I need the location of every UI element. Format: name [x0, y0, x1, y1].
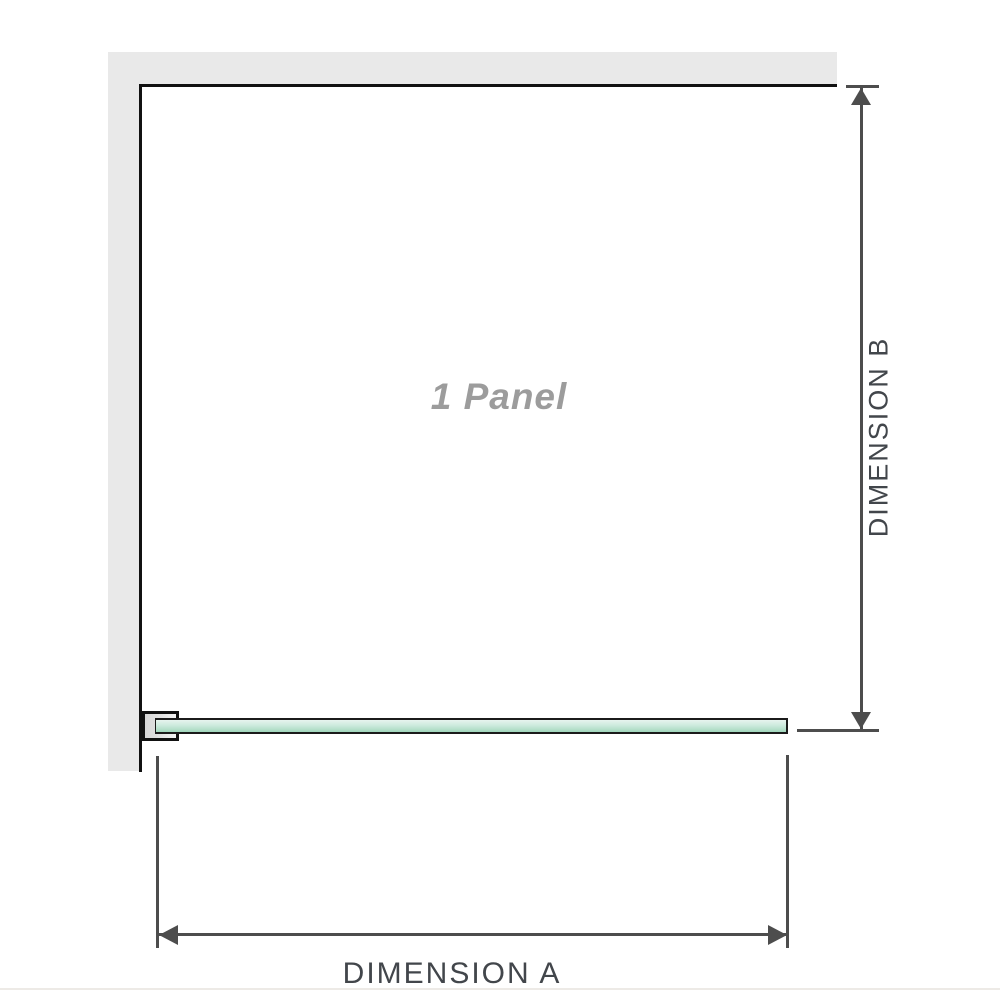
arrow-down-icon	[851, 712, 871, 729]
dimension-a-extension-left	[156, 756, 159, 948]
glass-panel	[155, 718, 788, 734]
arrow-up-icon	[851, 88, 871, 105]
dimension-a-extension-right	[786, 755, 789, 948]
dimension-a-label: DIMENSION A	[343, 957, 562, 991]
shower-panel-diagram: 1 Panel DIMENSION B DIMENSION A	[0, 0, 1000, 1000]
wall-top	[108, 52, 837, 84]
panel-outline-top	[139, 84, 837, 87]
dimension-a-line	[158, 933, 788, 936]
wall-left	[108, 52, 139, 771]
page-divider	[0, 988, 1000, 990]
arrow-left-icon	[159, 925, 178, 945]
dimension-b-tick-bottom	[797, 729, 879, 732]
dimension-b-label: DIMENSION B	[864, 337, 895, 538]
arrow-right-icon	[768, 925, 787, 945]
panel-outline-left	[139, 84, 142, 772]
panel-count-label: 1 Panel	[431, 376, 568, 418]
